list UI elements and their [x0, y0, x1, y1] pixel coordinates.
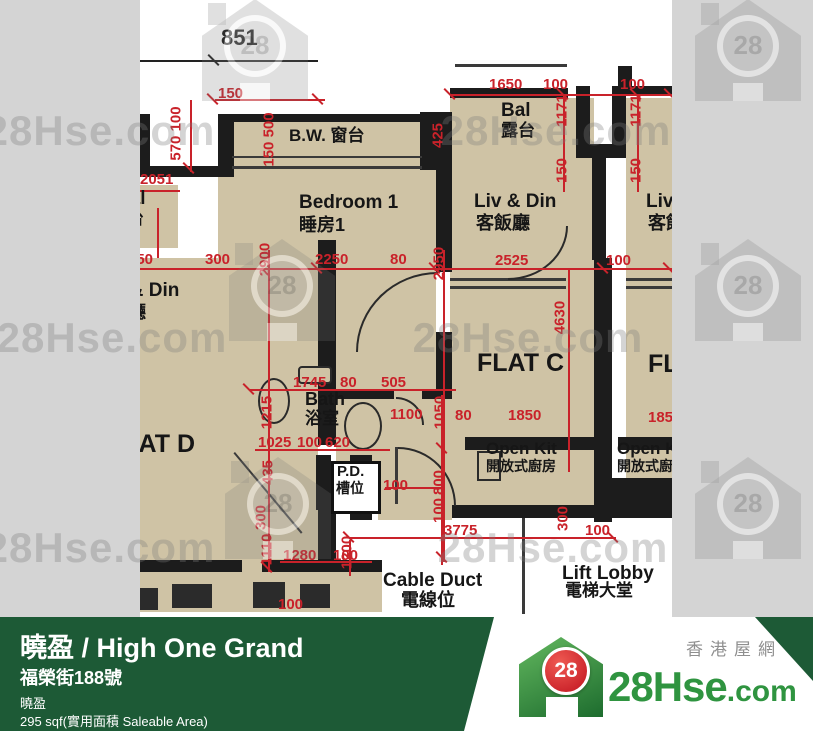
dim-label-h: 100 [606, 253, 631, 268]
room-label: Open Kit [486, 440, 557, 457]
wall-segment [576, 144, 626, 158]
dim-line-black [140, 60, 318, 62]
dim-label-h: 100 [383, 478, 408, 493]
dim-label-h: 100 [585, 523, 610, 538]
room-label: 電線位 [401, 591, 455, 609]
wall-segment [452, 505, 605, 518]
dim-line [568, 268, 570, 472]
room-label: 露台 [501, 122, 535, 139]
dim-label-h: 505 [381, 375, 406, 390]
footer-bar: 曉盈 / High One Grand 福榮街188號 曉盈 295 sqf(實… [0, 617, 813, 731]
dim-line [157, 208, 159, 258]
dim-label-h: 100 [297, 435, 322, 450]
door-leaf-flat-c [395, 447, 398, 504]
dim-label-v: 1200 [340, 516, 355, 590]
room-label: Liv & Din [474, 192, 556, 211]
room-label: 開放式廚房 [486, 459, 556, 473]
room-label: 浴室 [305, 410, 339, 427]
right-matte [672, 0, 813, 618]
dim-label-h: 300 [205, 252, 230, 267]
dim-label-v: 150 500 [262, 103, 277, 177]
room-label: 客飯廳 [476, 214, 530, 232]
dim-label-v: 150 [555, 134, 570, 208]
wall-segment [140, 560, 242, 572]
dim-label-h: 1650 [489, 77, 522, 92]
wall-segment [140, 114, 150, 168]
room-label: 電梯大堂 [565, 582, 633, 599]
wall-segment [600, 478, 672, 518]
kitchen-fixture [172, 584, 212, 608]
badge-28-icon: 28 [542, 647, 590, 695]
property-estate-name: 曉盈 [20, 693, 46, 712]
dim-label-v: 570 100 [169, 97, 184, 171]
dim-line [190, 100, 192, 172]
28hse-logo[interactable]: 香港屋網 28 28Hse.com [516, 629, 796, 725]
dim-label-v: 2900 [258, 223, 273, 297]
room-label: 851 [221, 27, 258, 49]
house-door-icon [546, 697, 578, 719]
dim-label-h: 2525 [495, 253, 528, 268]
dim-label-h: 80 [340, 375, 357, 390]
dim-label-v: 4630 [553, 281, 568, 355]
kitchen-fixture [140, 588, 158, 610]
dim-label-h: 150 [218, 86, 243, 101]
balcony-rail [626, 278, 672, 281]
dim-label-h: 620 [325, 435, 350, 450]
dim-label-h: 1850 [508, 408, 541, 423]
logo-tagline: 香港屋網 [686, 635, 782, 660]
dim-label-h: 1280 [283, 548, 316, 563]
kitchen-fixture [300, 584, 330, 608]
room-label: Open K [617, 440, 677, 457]
room-label: Bath [305, 390, 345, 408]
wall-segment [316, 455, 331, 510]
dim-label-v: 100 [432, 474, 447, 548]
balcony-rail [626, 286, 672, 289]
page: 1501650100100205115030022508025251001745… [0, 0, 813, 731]
room-label: Bal [501, 101, 531, 120]
room-label: P.D. [337, 464, 364, 479]
brand-suffix: .com [727, 675, 797, 708]
room-label: FLAT C [477, 351, 564, 376]
brand-wordmark: 28Hse.com [608, 663, 797, 711]
dim-line [140, 268, 672, 270]
room-label: 槽位 [336, 481, 364, 495]
dim-label-v: 1050 [433, 376, 448, 450]
room-label: B.W. 窗台 [289, 127, 365, 144]
dim-label-h: 100 [278, 597, 303, 612]
dim-label-h: 1100 [390, 407, 423, 422]
balcony-rail [450, 286, 566, 289]
dim-label-h: 80 [455, 408, 472, 423]
wall-segment [592, 158, 606, 260]
room-label: Cable Duct [383, 571, 482, 590]
dim-line [350, 537, 616, 539]
room-label: 睡房1 [299, 216, 345, 234]
dim-label-h: 1745 [293, 375, 326, 390]
wall-segment [218, 114, 234, 172]
lobby-line [522, 518, 525, 614]
property-saleable-area: 295 sqf(實用面積 Saleable Area) [20, 711, 208, 730]
dim-label-h: 3775 [444, 523, 477, 538]
dim-label-v: 150 [629, 134, 644, 208]
balcony-line [455, 64, 567, 67]
left-matte [0, 0, 140, 618]
brand-prefix: 28Hse [608, 663, 727, 710]
dim-label-h: 2250 [315, 252, 348, 267]
dim-label-v: 425 [431, 99, 446, 173]
dim-label-h: 80 [390, 252, 407, 267]
floor-left-balcony [140, 185, 178, 248]
property-title: 曉盈 / High One Grand [20, 626, 304, 665]
dim-line [140, 190, 180, 192]
dim-label-v: 2950 [432, 227, 447, 301]
floor-flat-d [140, 258, 318, 560]
room-label: Bedroom 1 [299, 193, 398, 212]
dim-label-v: 1110 [260, 513, 275, 587]
property-address: 福榮街188號 [20, 664, 122, 690]
room-label: 開放式廚 [617, 459, 673, 473]
dim-label-h: 2051 [140, 172, 173, 187]
dim-label-v: 300 [556, 482, 571, 556]
